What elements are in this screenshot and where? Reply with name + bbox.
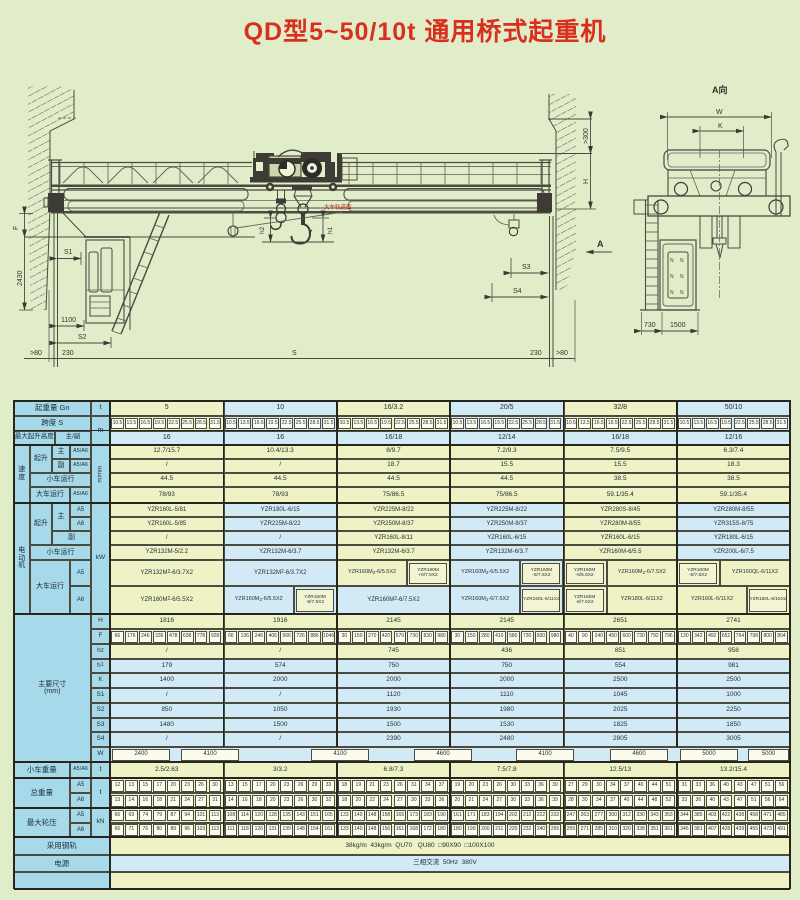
svg-text:1100: 1100	[61, 317, 76, 324]
svg-text:大车轨道面: 大车轨道面	[324, 203, 352, 211]
svg-text:F: F	[13, 226, 20, 230]
svg-text:2430: 2430	[17, 270, 24, 286]
svg-text:S4: S4	[513, 288, 522, 295]
svg-text:S: S	[292, 350, 297, 357]
svg-text:>80: >80	[30, 350, 42, 357]
svg-text:H: H	[583, 179, 590, 184]
svg-text:230: 230	[62, 350, 74, 357]
svg-text:A: A	[597, 239, 604, 249]
svg-text:>80: >80	[556, 350, 568, 357]
svg-text:A向: A向	[712, 84, 728, 95]
svg-text:S1: S1	[64, 249, 73, 256]
svg-text:S3: S3	[522, 264, 531, 271]
svg-text:W: W	[716, 109, 723, 116]
svg-text:N: N	[680, 290, 684, 296]
svg-text:K: K	[718, 123, 723, 130]
svg-text:N: N	[680, 258, 684, 264]
svg-text:S2: S2	[78, 334, 87, 341]
svg-text:N: N	[680, 274, 684, 280]
svg-text:N: N	[670, 290, 674, 296]
svg-text:1500: 1500	[670, 322, 686, 329]
svg-text:N: N	[670, 258, 674, 264]
svg-text:h2: h2	[259, 226, 266, 234]
svg-text:N: N	[670, 274, 674, 280]
svg-text:>300: >300	[583, 128, 590, 144]
svg-text:230: 230	[530, 350, 542, 357]
svg-text:730: 730	[644, 322, 656, 329]
svg-text:h1: h1	[327, 226, 334, 234]
